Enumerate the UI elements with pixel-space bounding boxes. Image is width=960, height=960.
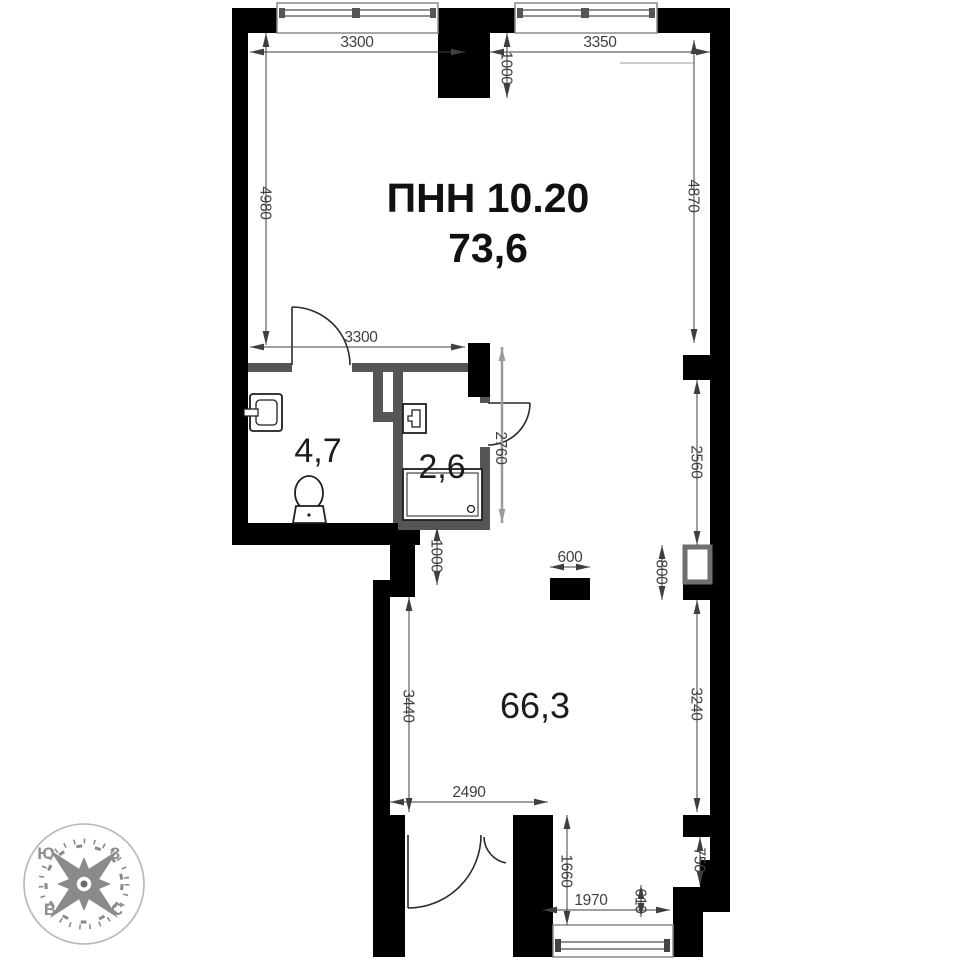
wall-bath-bottom [232,523,420,545]
dim-label-1970: 1970 [574,892,608,909]
vent-shaft [685,547,710,582]
window-top-left [277,3,438,33]
door-bathroom [292,307,350,365]
compass-rose: Ю З В С [24,824,144,944]
compass-label-west: З [110,844,121,863]
wall-entry-jamb-right [513,815,553,957]
window-cap [517,8,523,18]
dim-label-3300-mid: 3300 [344,329,378,346]
fixture-sink-bath [244,394,282,431]
wall-left [232,8,248,525]
compass-hub-dot [81,881,88,888]
dim-label-1660: 1660 [558,854,575,888]
wall-pier-right-b [683,815,710,837]
compass-label-north: С [111,900,123,919]
partition-bath-divider [393,363,403,523]
dim-label-4980: 4980 [257,186,274,220]
fixture-toilet [293,476,326,523]
toilet-bowl [295,476,323,510]
room-label-main: 66,3 [500,685,570,726]
partition-bath-top-left [248,363,292,372]
wall-entry-jamb-left [373,815,405,957]
shower-drain [468,506,475,513]
dim-label-750: 750 [691,848,708,874]
window-cap [664,939,670,952]
partition-shower-right-stub [480,397,490,403]
toilet-button [307,513,310,516]
dim-label-600: 600 [558,549,584,566]
dim-label-3350-top: 3350 [583,34,617,51]
partition-bath-top-right [352,363,468,372]
dim-label-3300-top: 3300 [340,34,374,51]
door-small-leaf-arc [484,837,506,863]
wall-pier-bath-corner [468,343,490,397]
window-cap [555,939,561,952]
door-entry [408,835,506,908]
compass-label-east: В [44,900,56,919]
door-swing-arc [408,835,481,908]
door-swing-arc [292,307,350,365]
window-mullion [581,8,589,18]
dim-label-1000-top: 1000 [498,51,515,85]
window-top-right [515,3,657,33]
dim-label-3240: 3240 [688,687,705,721]
room-label-bathroom: 4,7 [294,432,341,470]
wall-right [710,8,730,912]
fixture-sink-shower-room [403,404,426,433]
window-frame [553,925,673,957]
dim-label-610: 610 [632,889,649,915]
window-cap [279,8,285,18]
room-label-shower: 2,6 [418,448,465,486]
dim-label-4870: 4870 [685,179,702,213]
window-cap [430,8,436,18]
wall-pier-right-a [683,355,710,380]
floor-plan: 3300 1000 3350 4980 4870 3300 2760 2560 … [0,0,960,960]
dim-label-3440: 3440 [400,689,417,723]
wall-left-step [390,545,415,597]
partition-shaft-bottom [373,412,400,422]
floor-plan-drawing: 3300 1000 3350 4980 4870 3300 2760 2560 … [0,0,960,960]
window-bottom [553,925,673,957]
sink-bowl [256,400,277,425]
unit-title: ПНН 10.20 [387,175,590,221]
wall-top-mid-segment [490,8,517,33]
column-freestanding [550,578,590,600]
dim-label-800: 800 [653,560,670,586]
sink-faucet [244,409,258,416]
window-cap [649,8,655,18]
window-mullion [352,8,360,18]
dim-label-2560: 2560 [688,445,705,479]
wall-top-center-pier [438,8,490,98]
dim-label-2760: 2760 [492,431,509,465]
unit-area: 73,6 [448,225,528,271]
dim-label-1000-low: 1000 [428,539,445,573]
compass-label-south: Ю [37,844,55,863]
wall-bottom-right-corner [673,887,703,957]
dim-label-2490: 2490 [452,784,486,801]
